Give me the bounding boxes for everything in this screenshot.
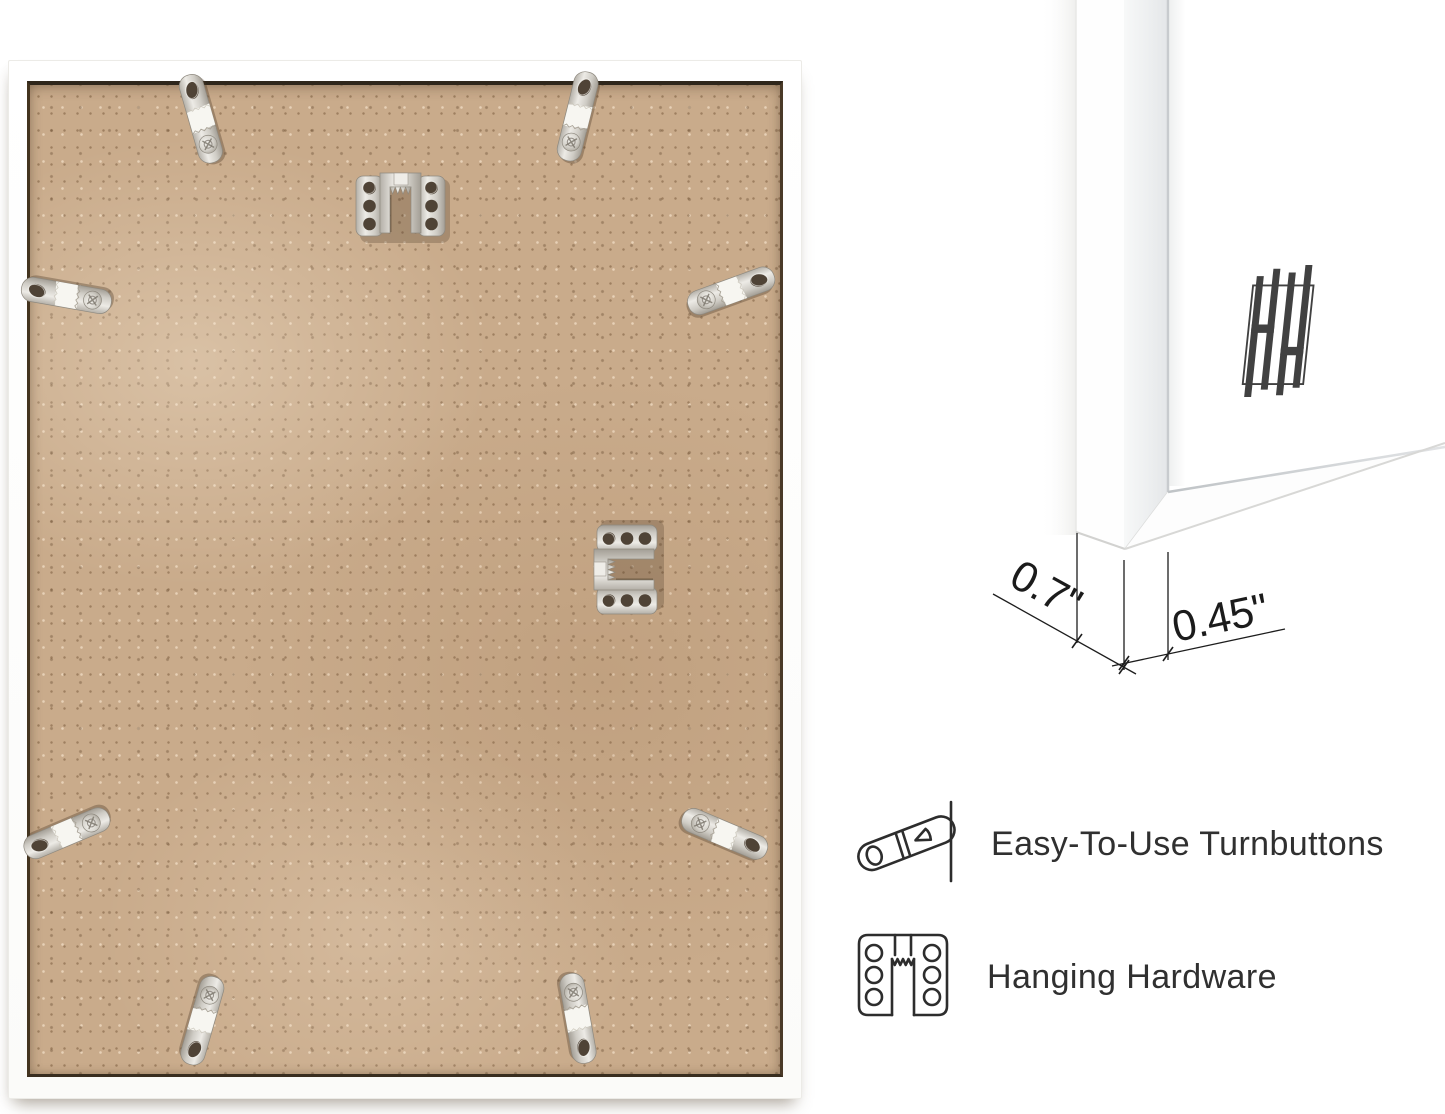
product-infographic: 0.7" 0.45" Easy-To-Use Turnbuttons: [0, 0, 1445, 1114]
feature-label: Easy-To-Use Turnbuttons: [991, 825, 1384, 864]
hanging-hardware-icon: [855, 931, 951, 1024]
feature-label: Hanging Hardware: [987, 958, 1277, 997]
frame-moulding-corner: [1040, 0, 1445, 549]
sawtooth-hanger: [354, 169, 448, 241]
turnbutton-icon: [855, 799, 955, 889]
dimension-face-label: 0.45": [1168, 585, 1272, 652]
frame-corner-view: 0.7" 0.45": [940, 0, 1445, 700]
corner-view-drawing: 0.7" 0.45": [940, 0, 1445, 700]
feature-row-turnbuttons: Easy-To-Use Turnbuttons: [855, 800, 1384, 888]
dimension-side-label: 0.7": [1002, 551, 1089, 628]
hh-monogram-logo: [1241, 265, 1315, 397]
feature-row-hanging-hardware: Hanging Hardware: [855, 932, 1277, 1022]
sawtooth-hanger: [590, 522, 662, 616]
frame-back-photo: [8, 60, 802, 1099]
